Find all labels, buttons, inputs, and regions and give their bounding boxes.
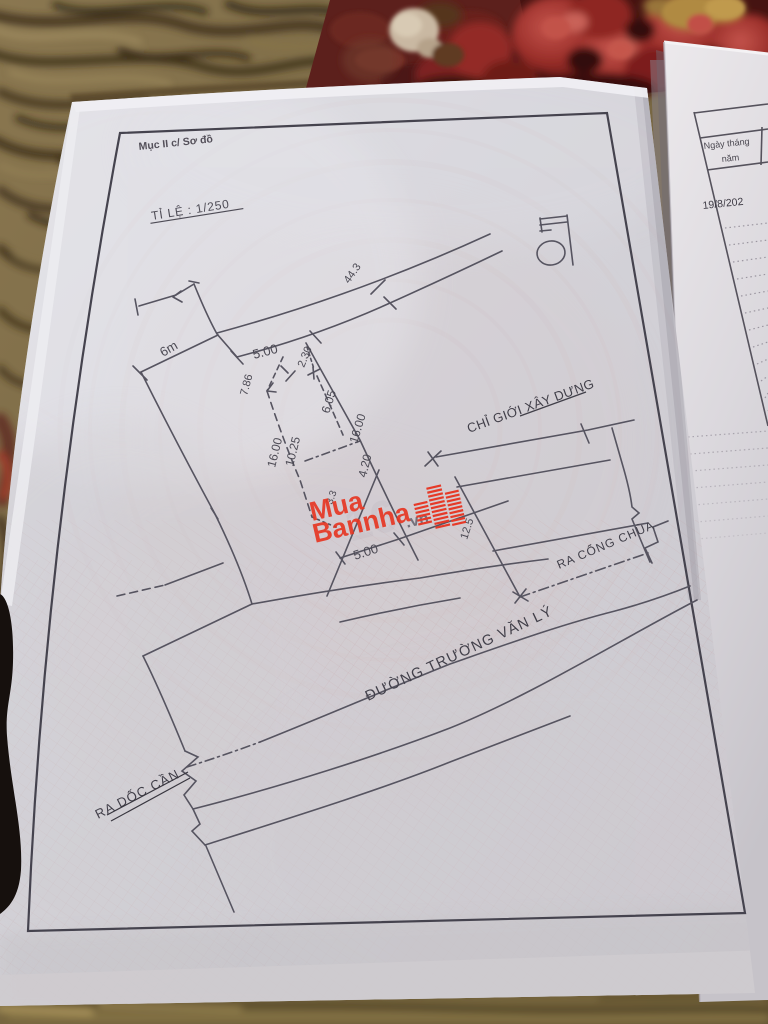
svg-text:năm: năm [721, 152, 739, 164]
